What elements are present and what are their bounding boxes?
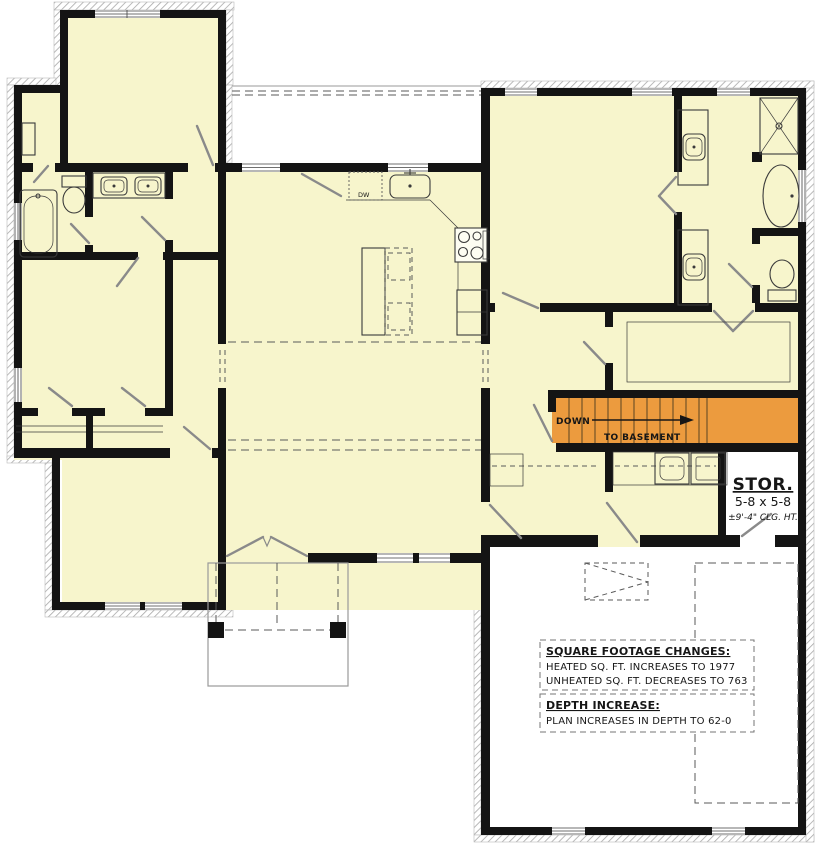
window	[505, 88, 537, 96]
porch-column	[208, 622, 224, 638]
garage: SQUARE FOOTAGE CHANGES: HEATED SQ. FT. I…	[540, 563, 798, 803]
depth-note-box: DEPTH INCREASE: PLAN INCREASES IN DEPTH …	[540, 694, 754, 732]
sqft-note-box: SQUARE FOOTAGE CHANGES: HEATED SQ. FT. I…	[540, 640, 754, 690]
attic-access-marker	[585, 563, 648, 600]
basement-stairs: DOWN TO BASEMENT	[552, 398, 798, 443]
window	[14, 203, 22, 240]
stairs-down-label: DOWN	[556, 417, 590, 427]
window	[95, 10, 160, 18]
floor-plan-drawing: DOWN TO BASEMENT	[0, 0, 824, 850]
window	[717, 88, 750, 96]
window	[632, 88, 672, 96]
window	[712, 827, 745, 835]
sqft-note-line1: HEATED SQ. FT. INCREASES TO 1977	[546, 662, 735, 673]
window	[14, 368, 22, 402]
storage-room-labels: STOR. 5-8 x 5-8 ±9'-4" CLG. HT.	[728, 475, 798, 523]
floor-plan-page: DOWN TO BASEMENT	[0, 0, 824, 850]
dishwasher-label: DW	[358, 191, 370, 199]
window	[419, 553, 450, 563]
window	[552, 827, 585, 835]
cooktop	[455, 228, 489, 262]
storage-title: STOR.	[733, 475, 794, 495]
depth-note-line: PLAN INCREASES IN DEPTH TO 62-0	[546, 716, 732, 727]
storage-ceiling-height: ±9'-4" CLG. HT.	[728, 513, 798, 523]
storage-size: 5-8 x 5-8	[735, 494, 791, 509]
window	[242, 163, 280, 172]
rear-porch-lines	[232, 86, 481, 95]
sqft-note-title: SQUARE FOOTAGE CHANGES:	[546, 645, 730, 658]
sqft-note-line2: UNHEATED SQ. FT. DECREASES TO 763	[546, 676, 748, 687]
stairs-to-basement-label: TO BASEMENT	[604, 433, 681, 443]
region-left-wing	[62, 10, 226, 610]
window	[145, 602, 182, 610]
window	[388, 163, 428, 172]
porch-column	[330, 622, 346, 638]
depth-note-title: DEPTH INCREASE:	[546, 699, 660, 712]
window	[105, 602, 140, 610]
window	[377, 553, 413, 563]
